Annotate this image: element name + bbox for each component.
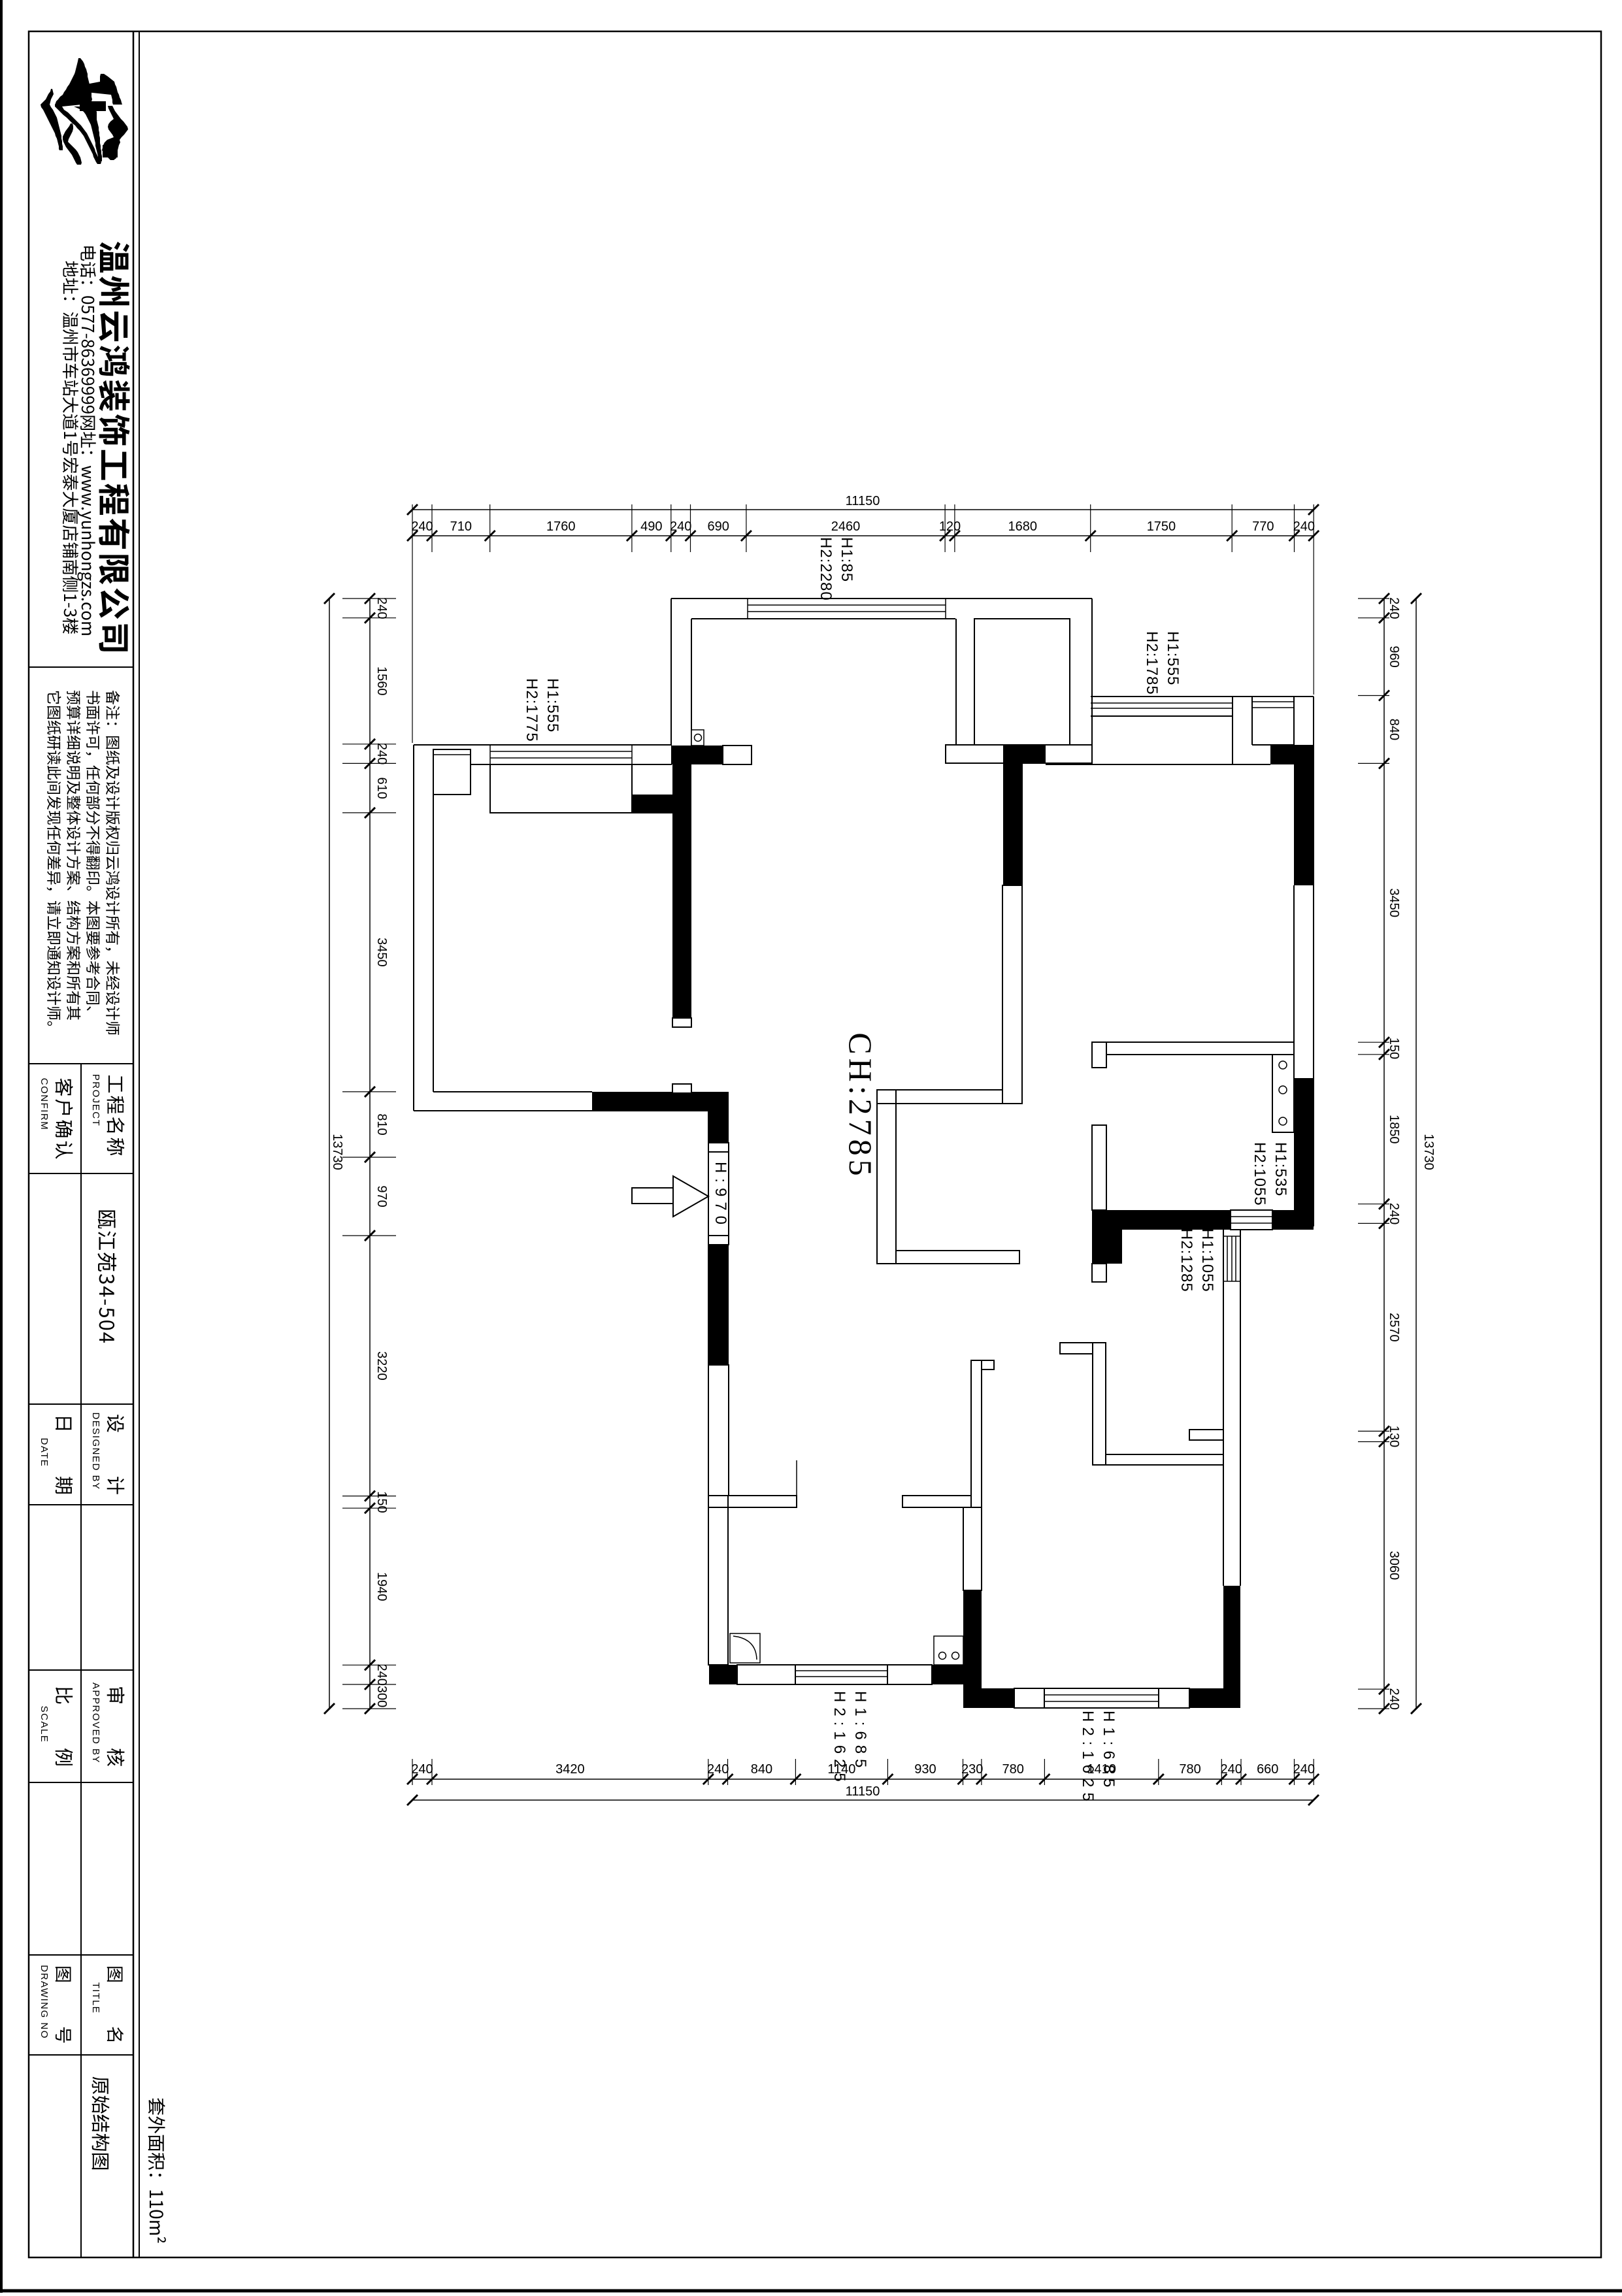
- svg-text:130: 130: [1387, 1426, 1401, 1447]
- svg-text:DATE: DATE: [39, 1438, 50, 1468]
- svg-text:1410: 1410: [1087, 1762, 1116, 1777]
- svg-text:240: 240: [411, 1762, 433, 1777]
- svg-text:SCALE: SCALE: [39, 1706, 50, 1743]
- svg-text:H1:85: H1:85: [838, 537, 855, 582]
- svg-text:H2:1625: H2:1625: [1079, 1711, 1097, 1807]
- svg-text:930: 930: [914, 1762, 936, 1777]
- svg-text:240: 240: [707, 1762, 729, 1777]
- svg-text:3060: 3060: [1387, 1551, 1401, 1581]
- svg-text:780: 780: [1002, 1762, 1023, 1777]
- svg-text:240: 240: [1293, 1762, 1315, 1777]
- svg-text:APPROVED BY: APPROVED BY: [90, 1682, 101, 1763]
- svg-text:3220: 3220: [374, 1351, 389, 1381]
- svg-text:710: 710: [450, 519, 472, 534]
- svg-text:2570: 2570: [1387, 1313, 1401, 1341]
- svg-text:230: 230: [961, 1762, 983, 1777]
- svg-text:13730: 13730: [1421, 1134, 1436, 1170]
- svg-text:1680: 1680: [1008, 519, 1038, 534]
- svg-text:240: 240: [411, 519, 433, 534]
- svg-text:DRAWING NO: DRAWING NO: [39, 1965, 50, 2039]
- svg-text:120: 120: [939, 519, 961, 534]
- svg-text:DESIGNED BY: DESIGNED BY: [90, 1412, 101, 1490]
- svg-text:H1:555: H1:555: [1164, 631, 1182, 685]
- svg-text:H1:685: H1:685: [852, 1691, 869, 1773]
- svg-text:840: 840: [1387, 719, 1401, 740]
- svg-text:H2:2280: H2:2280: [817, 537, 835, 601]
- svg-text:CONFIRM: CONFIRM: [39, 1078, 50, 1131]
- svg-text:1560: 1560: [374, 666, 389, 696]
- svg-text:610: 610: [374, 777, 389, 798]
- svg-text:H1:1055: H1:1055: [1199, 1228, 1216, 1292]
- svg-text:240: 240: [670, 519, 691, 534]
- svg-text:660: 660: [1257, 1762, 1278, 1777]
- svg-text:240: 240: [1387, 1203, 1401, 1224]
- svg-text:PROJECT: PROJECT: [90, 1074, 101, 1127]
- svg-text:970: 970: [374, 1185, 389, 1207]
- svg-text:150: 150: [1387, 1038, 1401, 1059]
- svg-text:11150: 11150: [846, 1784, 880, 1799]
- svg-text:780: 780: [1179, 1762, 1200, 1777]
- svg-text:3420: 3420: [555, 1762, 585, 1777]
- svg-text:3450: 3450: [374, 938, 389, 967]
- svg-text:H1:685: H1:685: [1100, 1711, 1117, 1792]
- svg-text:CH:2785: CH:2785: [842, 1032, 879, 1179]
- svg-text:1760: 1760: [546, 519, 576, 534]
- svg-text:960: 960: [1387, 646, 1401, 667]
- svg-text:13730: 13730: [330, 1134, 344, 1170]
- svg-text:240: 240: [1387, 597, 1401, 619]
- svg-text:H2:1775: H2:1775: [523, 678, 540, 742]
- svg-text:240: 240: [374, 743, 389, 764]
- svg-text:H2:1785: H2:1785: [1143, 631, 1161, 695]
- svg-text:H2:1285: H2:1285: [1178, 1228, 1195, 1292]
- svg-text:1850: 1850: [1387, 1115, 1401, 1144]
- svg-text:240: 240: [1293, 519, 1315, 534]
- svg-text:2460: 2460: [831, 519, 861, 534]
- svg-text:1750: 1750: [1147, 519, 1176, 534]
- svg-text:810: 810: [374, 1113, 389, 1135]
- svg-text:11150: 11150: [846, 494, 880, 508]
- svg-text:1140: 1140: [827, 1762, 855, 1777]
- svg-text:H:970: H:970: [712, 1162, 729, 1230]
- svg-text:300: 300: [374, 1686, 389, 1707]
- svg-text:1940: 1940: [374, 1572, 389, 1601]
- svg-text:240: 240: [1387, 1688, 1401, 1709]
- svg-text:690: 690: [708, 519, 729, 534]
- svg-text:3450: 3450: [1387, 889, 1401, 918]
- svg-text:H2:1055: H2:1055: [1251, 1142, 1268, 1206]
- svg-text:H1:535: H1:535: [1272, 1142, 1289, 1196]
- svg-text:240: 240: [374, 597, 389, 619]
- svg-text:840: 840: [751, 1762, 772, 1777]
- svg-text:150: 150: [374, 1491, 389, 1513]
- svg-text:240: 240: [1220, 1762, 1242, 1777]
- svg-text:TITLE: TITLE: [90, 1982, 101, 2014]
- svg-text:240: 240: [374, 1664, 389, 1685]
- svg-text:H1:555: H1:555: [544, 678, 561, 732]
- svg-text:490: 490: [640, 519, 662, 534]
- svg-text:770: 770: [1252, 519, 1274, 534]
